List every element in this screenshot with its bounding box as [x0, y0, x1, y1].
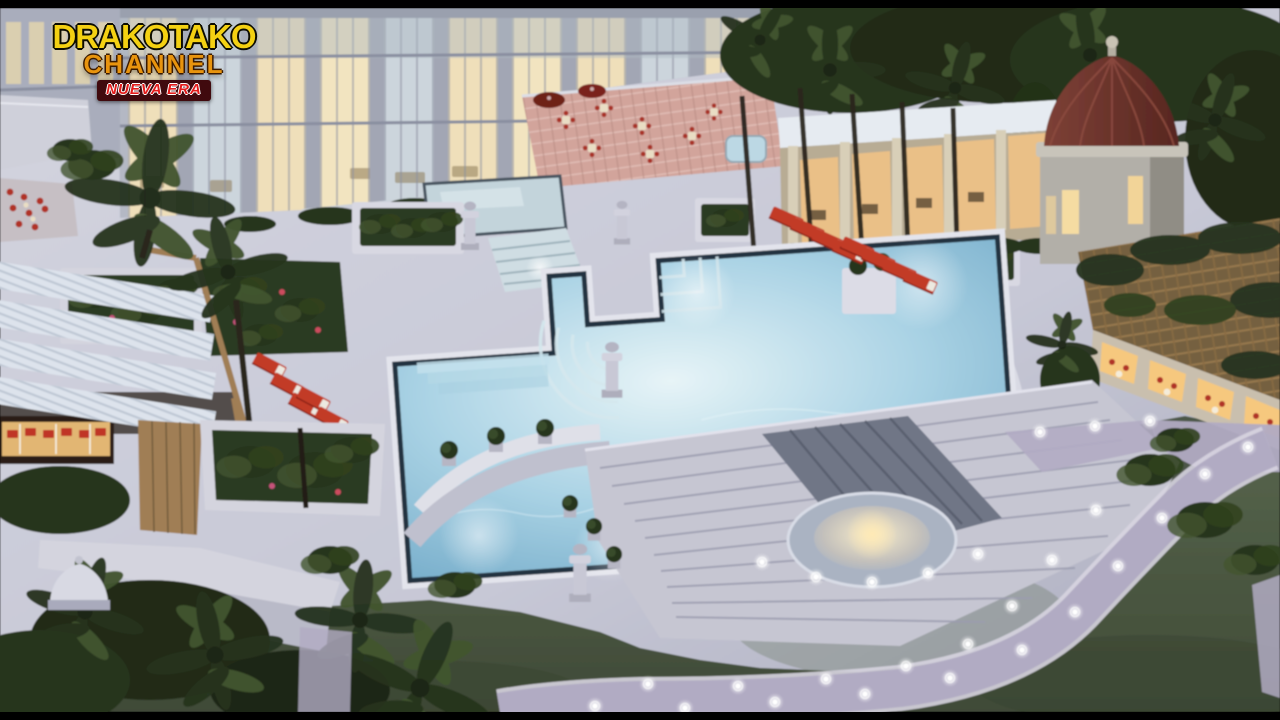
letterbox-top [0, 0, 1280, 8]
wood-deck [138, 420, 202, 535]
planter-box [695, 198, 755, 242]
video-frame: DRAKOTAKO CHANNEL NUEVA ERA [0, 0, 1280, 720]
resort-scene [0, 0, 1280, 720]
letterbox-bottom [0, 712, 1280, 720]
dome-finial [1106, 36, 1118, 48]
planter-box [352, 202, 464, 254]
channel-watermark: DRAKOTAKO CHANNEL NUEVA ERA [50, 20, 258, 101]
planter-box [200, 420, 385, 516]
side-path [298, 627, 352, 712]
watermark-tagline: NUEVA ERA [106, 81, 202, 98]
cabana-interior [0, 416, 114, 464]
lit-doorway [1062, 190, 1079, 234]
watermark-tagline-badge: NUEVA ERA [97, 80, 211, 101]
lit-doorway [1128, 176, 1143, 224]
